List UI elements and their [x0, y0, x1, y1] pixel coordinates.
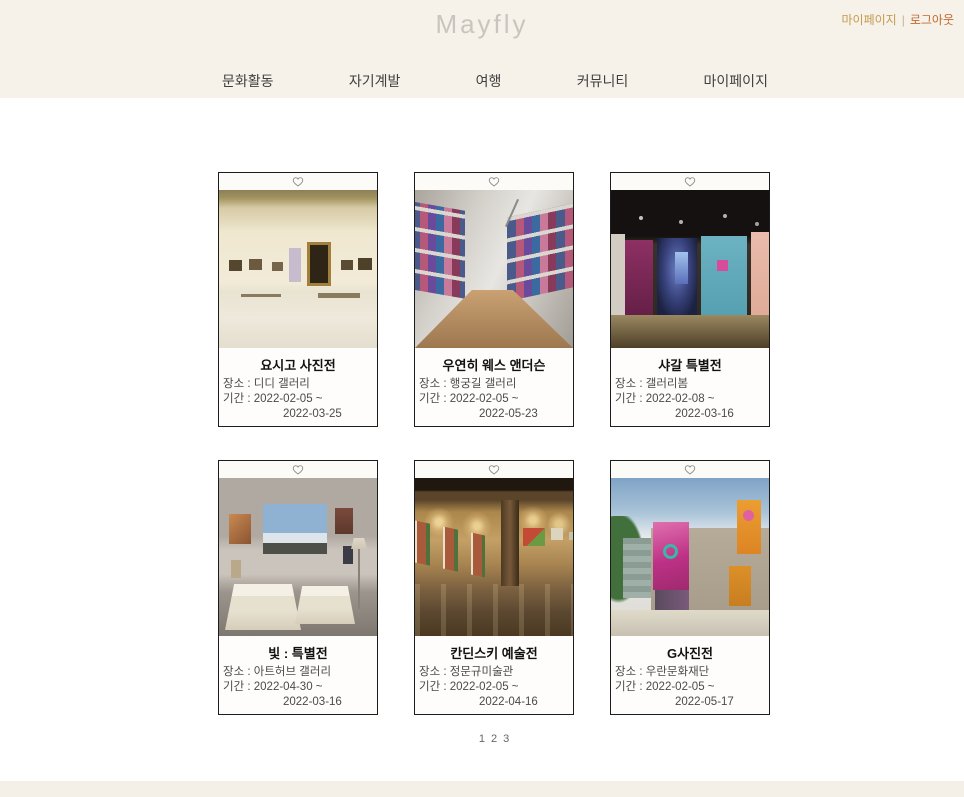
favorite-button[interactable]	[611, 173, 769, 190]
image-shape	[335, 508, 353, 534]
exhibition-title: 칸딘스키 예술전	[415, 643, 573, 662]
period-label: 기간 :	[419, 681, 447, 693]
image-shape	[341, 260, 353, 270]
period-label: 기간 :	[615, 393, 643, 405]
exhibition-info: 장소 : 디디 갤러리 기간 : 2022-02-05 ~ 2022-03-25	[219, 377, 377, 430]
venue-label: 장소 :	[419, 378, 447, 390]
heart-icon	[487, 175, 501, 188]
page-1[interactable]: 1	[479, 733, 485, 745]
favorite-button[interactable]	[415, 461, 573, 478]
image-shape	[225, 584, 301, 630]
venue-line: 장소 : 정문규미술관	[419, 665, 569, 680]
image-shape	[415, 521, 485, 578]
period-start: 2022-02-05 ~	[646, 681, 715, 693]
page-2[interactable]: 2	[491, 733, 497, 745]
period-label: 기간 :	[223, 681, 251, 693]
exhibition-card[interactable]: 우연히 웨스 앤더슨 장소 : 행궁길 갤러리 기간 : 2022-02-05 …	[414, 172, 574, 427]
image-shape	[358, 549, 360, 609]
period-line: 기간 : 2022-02-05 ~	[223, 392, 373, 407]
venue-line: 장소 : 우란문화재단	[615, 665, 765, 680]
heart-icon	[291, 463, 305, 476]
heart-icon	[291, 175, 305, 188]
venue-line: 장소 : 아트허브 갤러리	[223, 665, 373, 680]
image-shape	[611, 315, 769, 348]
period-line: 기간 : 2022-04-30 ~	[223, 680, 373, 695]
image-shape	[675, 252, 688, 284]
period-end: 2022-03-16	[615, 407, 765, 422]
image-shape	[295, 586, 355, 624]
period-label: 기간 :	[419, 393, 447, 405]
exhibition-title: 샤갈 특별전	[611, 355, 769, 374]
heart-icon	[683, 175, 697, 188]
exhibition-title: 우연히 웨스 앤더슨	[415, 355, 573, 374]
favorite-button[interactable]	[219, 173, 377, 190]
image-shape	[415, 201, 465, 299]
image-shape	[229, 260, 242, 271]
nav-item-selfdev[interactable]: 자기계발	[349, 71, 401, 91]
period-start: 2022-02-08 ~	[646, 393, 715, 405]
exhibition-image	[415, 190, 573, 348]
period-end: 2022-05-17	[615, 695, 765, 710]
exhibition-image	[611, 478, 769, 636]
venue-value: 우란문화재단	[646, 666, 709, 678]
image-shape	[307, 242, 331, 286]
period-start: 2022-02-05 ~	[450, 681, 519, 693]
image-shape	[415, 584, 573, 636]
image-shape	[663, 544, 678, 559]
image-shape	[263, 504, 327, 554]
period-end: 2022-05-23	[419, 407, 569, 422]
venue-line: 장소 : 행궁길 갤러리	[419, 377, 569, 392]
favorite-button[interactable]	[219, 461, 377, 478]
exhibition-card[interactable]: 칸딘스키 예술전 장소 : 정문규미술관 기간 : 2022-02-05 ~ 2…	[414, 460, 574, 715]
image-shape	[743, 510, 754, 521]
heart-icon	[683, 463, 697, 476]
image-shape	[611, 610, 769, 636]
venue-value: 행궁길 갤러리	[450, 378, 517, 390]
image-shape	[729, 566, 751, 606]
venue-value: 디디 갤러리	[254, 378, 310, 390]
image-shape	[639, 216, 643, 220]
image-shape	[611, 234, 625, 318]
exhibition-info: 장소 : 갤러리봄 기간 : 2022-02-08 ~ 2022-03-16	[611, 377, 769, 430]
period-start: 2022-04-30 ~	[254, 681, 323, 693]
exhibition-image	[219, 478, 377, 636]
venue-label: 장소 :	[223, 666, 251, 678]
image-shape	[507, 203, 573, 302]
image-shape	[551, 528, 563, 540]
image-shape	[523, 528, 545, 546]
exhibition-card[interactable]: 요시고 사진전 장소 : 디디 갤러리 기간 : 2022-02-05 ~ 20…	[218, 172, 378, 427]
image-shape	[289, 248, 301, 282]
site-logo[interactable]: Mayfly	[0, 0, 964, 40]
venue-line: 장소 : 디디 갤러리	[223, 377, 373, 392]
venue-label: 장소 :	[223, 378, 251, 390]
pagination: 123	[218, 733, 770, 745]
image-shape	[415, 290, 573, 348]
period-end: 2022-04-16	[419, 695, 569, 710]
exhibition-title: 빛 : 특별전	[219, 643, 377, 662]
venue-label: 장소 :	[615, 666, 643, 678]
exhibition-info: 장소 : 아트허브 갤러리 기간 : 2022-04-30 ~ 2022-03-…	[219, 665, 377, 718]
period-start: 2022-02-05 ~	[450, 393, 519, 405]
period-end: 2022-03-25	[223, 407, 373, 422]
nav-item-community[interactable]: 커뮤니티	[577, 71, 629, 91]
exhibition-title: G사진전	[611, 643, 769, 662]
image-shape	[737, 500, 761, 554]
user-links: 마이페이지|로그아웃	[842, 11, 955, 28]
image-shape	[501, 500, 519, 586]
image-shape	[751, 232, 769, 318]
nav-item-mypage[interactable]: 마이페이지	[704, 71, 768, 91]
heart-icon	[487, 463, 501, 476]
period-end: 2022-03-16	[223, 695, 373, 710]
period-line: 기간 : 2022-02-05 ~	[615, 680, 765, 695]
exhibition-info: 장소 : 행궁길 갤러리 기간 : 2022-02-05 ~ 2022-05-2…	[415, 377, 573, 430]
header: Mayfly 마이페이지|로그아웃 문화활동 자기계발 여행 커뮤니티 마이페이…	[0, 0, 964, 98]
venue-label: 장소 :	[615, 378, 643, 390]
image-shape	[351, 538, 367, 549]
exhibition-card[interactable]: G사진전 장소 : 우란문화재단 기간 : 2022-02-05 ~ 2022-…	[610, 460, 770, 715]
exhibition-card[interactable]: 빛 : 특별전 장소 : 아트허브 갤러리 기간 : 2022-04-30 ~ …	[218, 460, 378, 715]
exhibition-title: 요시고 사진전	[219, 355, 377, 374]
image-shape	[229, 514, 251, 544]
venue-value: 갤러리봄	[646, 378, 688, 390]
favorite-button[interactable]	[415, 173, 573, 190]
mypage-link[interactable]: 마이페이지	[842, 13, 897, 27]
nav-item-culture[interactable]: 문화활동	[222, 71, 274, 91]
exhibition-info: 장소 : 우란문화재단 기간 : 2022-02-05 ~ 2022-05-17	[611, 665, 769, 718]
logout-link[interactable]: 로그아웃	[910, 13, 954, 27]
period-label: 기간 :	[223, 393, 251, 405]
footer-bar	[0, 781, 964, 797]
period-start: 2022-02-05 ~	[254, 393, 323, 405]
page-3[interactable]: 3	[503, 733, 509, 745]
period-label: 기간 :	[615, 681, 643, 693]
main-nav: 문화활동 자기계발 여행 커뮤니티 마이페이지	[222, 71, 768, 91]
exhibition-image	[219, 190, 377, 348]
image-shape	[241, 294, 281, 297]
exhibition-image	[415, 478, 573, 636]
venue-value: 아트허브 갤러리	[254, 666, 331, 678]
link-separator: |	[902, 13, 905, 27]
venue-line: 장소 : 갤러리봄	[615, 377, 765, 392]
favorite-button[interactable]	[611, 461, 769, 478]
venue-value: 정문규미술관	[450, 666, 513, 678]
period-line: 기간 : 2022-02-05 ~	[419, 392, 569, 407]
period-line: 기간 : 2022-02-05 ~	[419, 680, 569, 695]
image-shape	[717, 260, 728, 271]
image-shape	[655, 590, 689, 610]
exhibition-grid: 요시고 사진전 장소 : 디디 갤러리 기간 : 2022-02-05 ~ 20…	[218, 172, 770, 715]
period-line: 기간 : 2022-02-08 ~	[615, 392, 765, 407]
image-shape	[701, 236, 747, 316]
venue-label: 장소 :	[419, 666, 447, 678]
nav-item-travel[interactable]: 여행	[476, 71, 502, 91]
image-shape	[625, 240, 653, 318]
exhibition-card[interactable]: 샤갈 특별전 장소 : 갤러리봄 기간 : 2022-02-08 ~ 2022-…	[610, 172, 770, 427]
exhibition-info: 장소 : 정문규미술관 기간 : 2022-02-05 ~ 2022-04-16	[415, 665, 573, 718]
exhibition-image	[611, 190, 769, 348]
